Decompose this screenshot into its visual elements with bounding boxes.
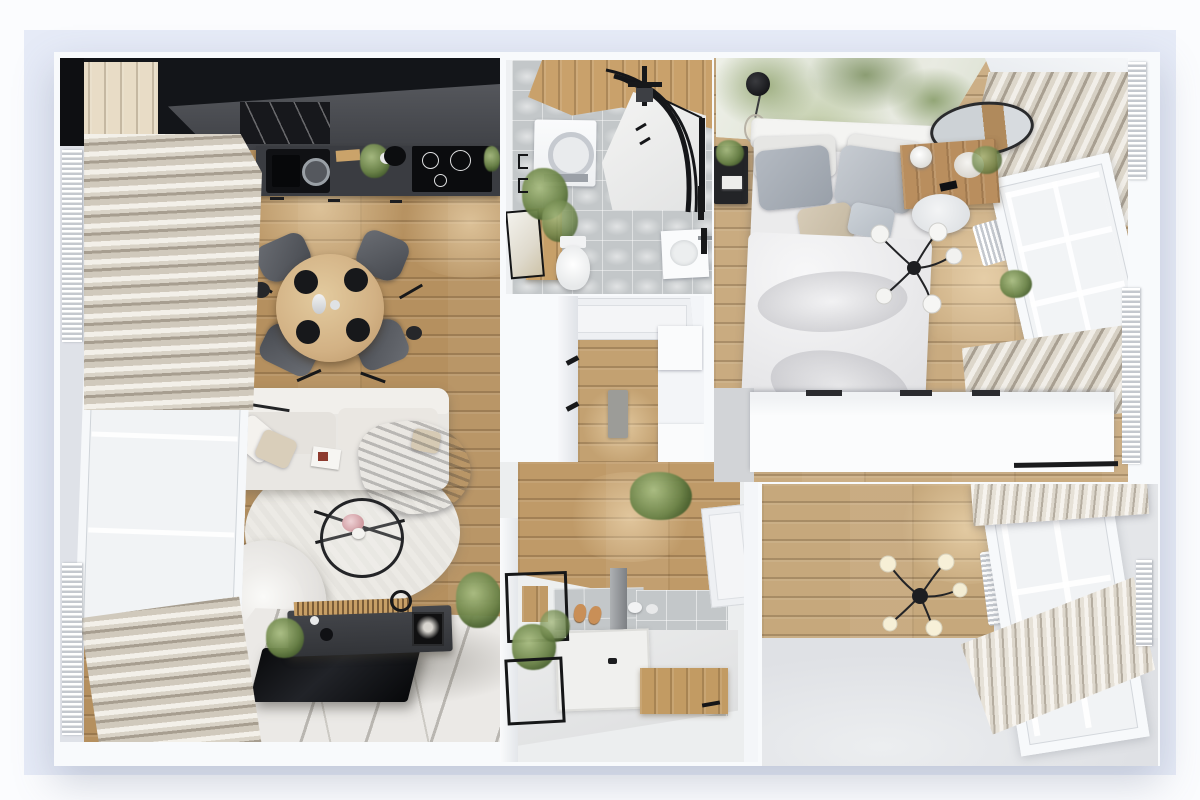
- coffee-maker: [384, 146, 406, 166]
- glass: [330, 300, 340, 310]
- curtain-pelmet: [971, 484, 1150, 526]
- plate: [346, 318, 370, 342]
- runner-mat: [608, 390, 628, 438]
- hob-ring: [434, 174, 447, 187]
- hob-ring: [422, 152, 439, 169]
- metal-shelf-frame: [504, 657, 565, 726]
- plate: [344, 268, 368, 292]
- cabinet-handle: [328, 199, 340, 202]
- toilet: [556, 246, 590, 290]
- wall-hook: [518, 154, 528, 169]
- curtain-upper: [84, 134, 262, 410]
- shower-drain: [608, 658, 617, 664]
- outer-radiator: [1122, 288, 1140, 464]
- plate: [294, 270, 318, 294]
- kitchen-tall-cabinet: [74, 62, 158, 138]
- floor-plan-render: [0, 0, 1200, 800]
- windowsill-plant: [1000, 270, 1032, 298]
- carafe: [312, 294, 326, 314]
- wall-hook: [518, 178, 528, 193]
- sink-basin: [272, 155, 300, 187]
- room-shower: [500, 462, 758, 762]
- radiator: [62, 150, 82, 342]
- nightstand-plant: [716, 140, 744, 166]
- room-bathroom: [506, 60, 712, 294]
- hanging-plant: [630, 472, 692, 520]
- nightstand-book: [722, 176, 742, 189]
- hall-cabinet: [658, 326, 702, 370]
- floor-plant: [456, 572, 500, 628]
- cutting-board: [336, 149, 361, 162]
- right-wall: [744, 462, 758, 762]
- room-living-kitchen: [60, 58, 500, 742]
- plate: [296, 320, 320, 344]
- pendant-shade: [746, 72, 770, 96]
- floor-object: [406, 326, 422, 340]
- shower-arm: [628, 82, 662, 87]
- book-cover: [318, 452, 328, 461]
- console-knob: [320, 628, 333, 641]
- outer-radiator: [1128, 62, 1146, 180]
- spider-chandelier: [852, 216, 978, 320]
- cabinet-handle: [390, 200, 402, 203]
- shower-column: [610, 568, 627, 632]
- room-empty: [762, 484, 1158, 766]
- desk-lamp-globe: [910, 146, 932, 168]
- curtain-lower: [79, 595, 267, 742]
- desk-plant: [972, 146, 1002, 174]
- shower-mixer: [646, 604, 658, 614]
- cooker-hood: [240, 102, 330, 144]
- wood-bench: [640, 668, 728, 714]
- hob-ring: [450, 150, 471, 171]
- counter-plant: [484, 146, 500, 172]
- console-knob: [310, 616, 319, 625]
- wardrobe-seam: [972, 390, 1000, 396]
- console-screen-art: [412, 612, 444, 646]
- black-trim: [698, 186, 704, 220]
- spider-chandelier: [854, 540, 984, 640]
- cabinet-handle: [270, 197, 284, 200]
- shower-mixer: [628, 602, 642, 613]
- cup: [352, 528, 365, 539]
- shelf-plant: [540, 610, 570, 642]
- sink-basin: [670, 240, 698, 266]
- wardrobe-seam: [806, 390, 842, 396]
- speaker: [390, 590, 412, 612]
- left-wall-dark: [60, 58, 84, 148]
- gray-floor-corner: [714, 388, 754, 482]
- black-trim: [701, 228, 707, 254]
- wardrobe-seam: [900, 390, 932, 396]
- pillow-gray: [754, 144, 833, 211]
- floor-plant: [266, 618, 304, 658]
- radiator: [62, 563, 82, 735]
- wardrobe: [750, 392, 1114, 472]
- shower-head: [636, 88, 653, 102]
- sink-faucet: [302, 158, 330, 186]
- room-bedroom: [714, 58, 1128, 482]
- outer-radiator: [1136, 560, 1152, 646]
